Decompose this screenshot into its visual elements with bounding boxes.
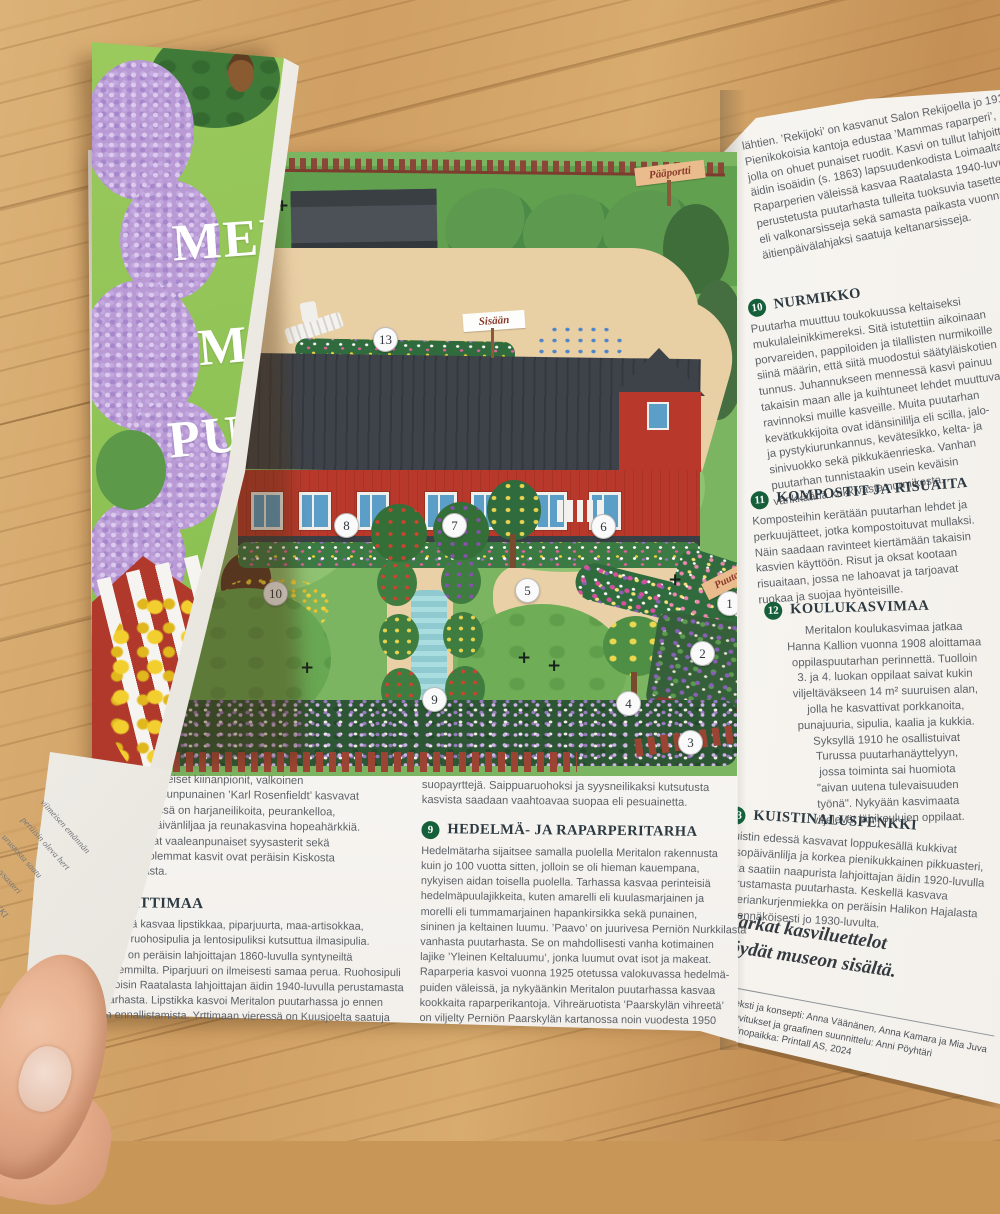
tree-plus-mark: + [517,648,531,668]
map-marker-8: 8 [334,513,359,538]
map-marker-9: 9 [422,687,447,712]
section-number-badge: 9 [421,821,439,839]
tree-plus-mark: + [668,570,682,590]
map-marker-6: 6 [591,514,616,539]
fruit-tree [441,558,481,604]
map-marker-13: 13 [373,327,398,352]
garden-chair [299,301,318,323]
map-marker-7: 7 [442,513,467,538]
building-window [299,492,331,530]
map-marker-3: 3 [678,730,703,755]
center-middle-column: suopayrttejä. Saippuaruohoksi ja syysnei… [419,778,747,1030]
section-kompostit: 11 KOMPOSTIT JA RISUAITA Komposteihin ke… [750,471,1000,609]
section-body: Meritalon koulukasvimaa jatkaaHanna Kall… [765,619,1000,831]
orchard-paragraph: Hedelmätarha sijaitsee samalla puolella … [419,844,747,1030]
section-koulukasvimaa: 12 KOULUKASVIMAA Meritalon koulukasvimaa… [764,596,1000,831]
section-heading: 9 HEDELMÄ- JA RAPARPERITARHA [421,821,747,842]
lilac-leaves [96,430,166,510]
sign-sisaan-post [491,328,494,358]
fruit-tree [377,560,417,606]
section-nurmikko: 10 NURMIKKO Puutarha muuttuu toukokuussa… [747,265,1000,511]
map-marker-5: 5 [515,578,540,603]
yrttimaa-paragraph: enkissä kasvaa lipstikkaa, piparjuurta, … [99,917,404,1027]
yrttimaa-heading: RTTIMAA [129,896,405,914]
fruit-tree [379,614,419,660]
pear-tree-trunk [510,534,516,568]
soapwort-paragraph: suopayrttejä. Saippuaruohoksi ja syysnei… [422,778,748,812]
lilac-cluster [84,60,194,200]
map-marker-2: 2 [690,641,715,666]
section-number-badge: 12 [764,602,782,620]
section-title: KOULUKASVIMAA [790,599,929,618]
text-line: kasvista saadaan vaahtoavaa suopaa eli p… [422,793,748,812]
section-body: Komposteihin kerätään puutarhan lehdet j… [752,494,1000,610]
tree-plus-mark: + [547,656,561,676]
acorn-icon [228,52,254,92]
fruit-tree [443,612,483,658]
section-number-badge: 11 [750,491,769,510]
shed-roof-ridge [290,189,436,208]
gable-window [647,402,669,430]
section-number-badge: 10 [747,298,767,318]
section-title: HEDELMÄ- JA RAPARPERITARHA [447,822,697,840]
pear-tree-crown [487,480,541,540]
map-marker-4: 4 [616,691,641,716]
text-line: en ennallistamista. Yrttimaan vieressä o… [99,1008,403,1026]
orchard-top-tree [371,504,427,562]
sign-paaportti-post [667,180,671,206]
map-marker-1: 1 [717,591,737,616]
tree-plus-mark: + [300,658,314,678]
map-shed [290,189,437,256]
